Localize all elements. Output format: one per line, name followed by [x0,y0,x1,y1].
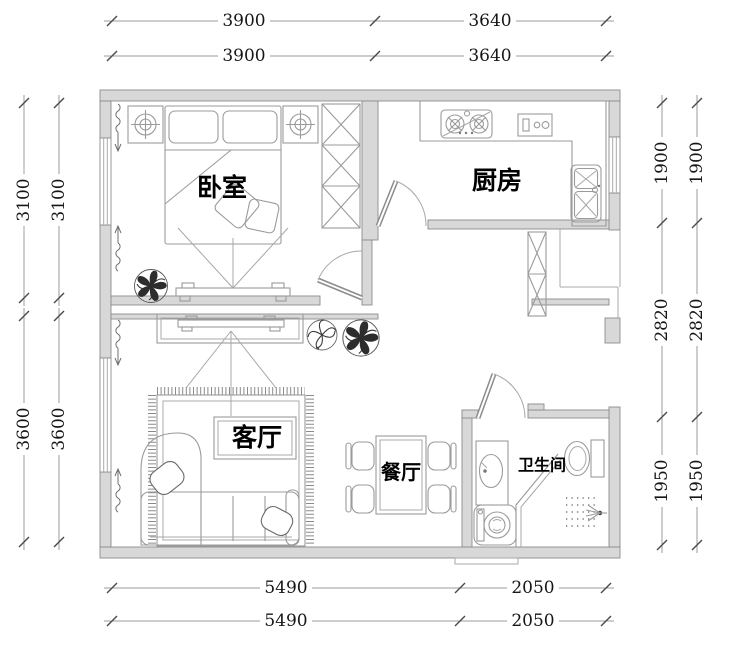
floor-plan-sheet: 卧室 厨房 [0,0,740,655]
tv-niche [157,314,303,343]
bedroom: 卧室 [128,104,360,303]
dim-label-right1-seg2: 2820 [652,298,672,341]
dining-chair [428,485,456,513]
dim-left-col2: 3100 3600 [49,95,69,550]
wall-left-seg1 [100,101,111,138]
lamp-right-icon [286,110,315,139]
wall-left-seg2 [100,225,111,358]
potted-plant-icon [307,320,337,350]
wall-left-seg3 [100,472,111,547]
dim-label-left1-seg2: 3600 [14,407,34,450]
dim-right-col1: 1900 2820 1950 [652,95,672,553]
gas-stove-icon [441,110,492,138]
dim-label-bottom2-seg2: 2050 [511,611,554,631]
wall-bathroom-doorstop [528,404,544,410]
wall-bathroom-north-left [462,410,478,418]
bathroom-door [478,374,525,418]
sofa-pillow [258,503,296,538]
pillow [223,111,277,143]
curtain-squiggle-living-bottom [115,469,121,512]
dim-label-top1-seg1: 3900 [222,11,265,31]
kitchen-door [378,181,426,226]
dim-label-bottom2-seg1: 5490 [264,611,307,631]
dim-right-col2: 1900 2820 1950 [687,95,707,553]
wall-bedroom-east [362,101,378,240]
wall-top [100,90,620,101]
dim-label-right2-seg1: 1900 [687,141,707,184]
wall-right-seg2 [609,193,620,230]
dining-chair [346,485,374,513]
kitchen-counter [420,101,606,226]
wall-right-seg1 [609,101,620,137]
potted-plant-icon [343,320,379,356]
dim-label-bottom1-seg1: 5490 [264,578,307,598]
threshold-step [455,558,518,564]
wall-corridor-south [532,299,609,305]
bathroom: 卫生间 [474,440,607,547]
dim-bottom-row1: 5490 2050 [104,578,614,598]
dim-label-left2-seg2: 3600 [49,407,69,450]
wall-bathroom-north-right [528,410,609,418]
pillow [169,111,218,143]
wall-bathroom-west [462,410,472,547]
wall-right-seg3 [609,407,620,547]
lamp-left-icon [131,110,160,139]
dim-label-top2-seg1: 3900 [222,46,265,66]
toilet [565,440,605,477]
dim-label-top1-seg2: 3640 [468,11,511,31]
bathroom-label: 卫生间 [518,456,566,475]
dim-label-right2-seg3: 1950 [687,459,707,502]
dim-bottom-row2: 5490 2050 [104,611,614,631]
bedroom-door [318,251,362,298]
dim-label-bottom1-seg2: 2050 [511,578,554,598]
floor-plan-drawing: 卧室 厨房 [0,0,740,655]
dim-label-left1-seg1: 3100 [14,178,34,221]
bedroom-tv-bench [176,228,290,301]
living-room-label: 客厅 [232,423,282,452]
washbasin [476,441,508,505]
dining-area: 餐厅 [346,436,456,514]
wall-entry-stub [605,318,620,343]
curtain-squiggle-bedroom-bottom [115,226,121,271]
dim-label-top2-seg2: 3640 [468,46,511,66]
curtain-squiggle-living-top [115,320,121,365]
living-room: 客厅 [141,314,379,546]
control-panel-icon [518,114,552,136]
dim-top-row2: 3900 3640 [104,46,614,66]
dining-chair [346,442,374,470]
kitchen-window [609,137,620,193]
double-sink-icon [571,165,601,222]
bedroom-window [100,138,111,225]
wall-kitchen-south [428,220,609,229]
bedroom-wardrobe [322,104,360,228]
wall-bedroom-east-lower [362,240,372,305]
dim-label-right1-seg3: 1950 [652,459,672,502]
dim-label-left2-seg1: 3100 [49,178,69,221]
potted-plant-icon [135,270,168,303]
quilt-cushion [244,198,280,234]
dim-label-right1-seg1: 1900 [652,141,672,184]
curtain-squiggle-bedroom-top [115,104,121,151]
living-room-window [100,358,111,472]
washing-machine [474,505,516,545]
dim-left-col1: 3100 3600 [14,95,34,550]
dining-chair [428,442,456,470]
bedroom-label: 卧室 [197,173,247,202]
dining-room-label: 餐厅 [381,460,421,484]
kitchen-label: 厨房 [472,166,522,195]
wall-bottom [100,547,620,558]
kitchen: 厨房 [420,101,606,226]
dim-label-right2-seg2: 2820 [687,298,707,341]
curtain-symbols [115,104,121,512]
dim-top-row1: 3900 3640 [104,11,614,31]
